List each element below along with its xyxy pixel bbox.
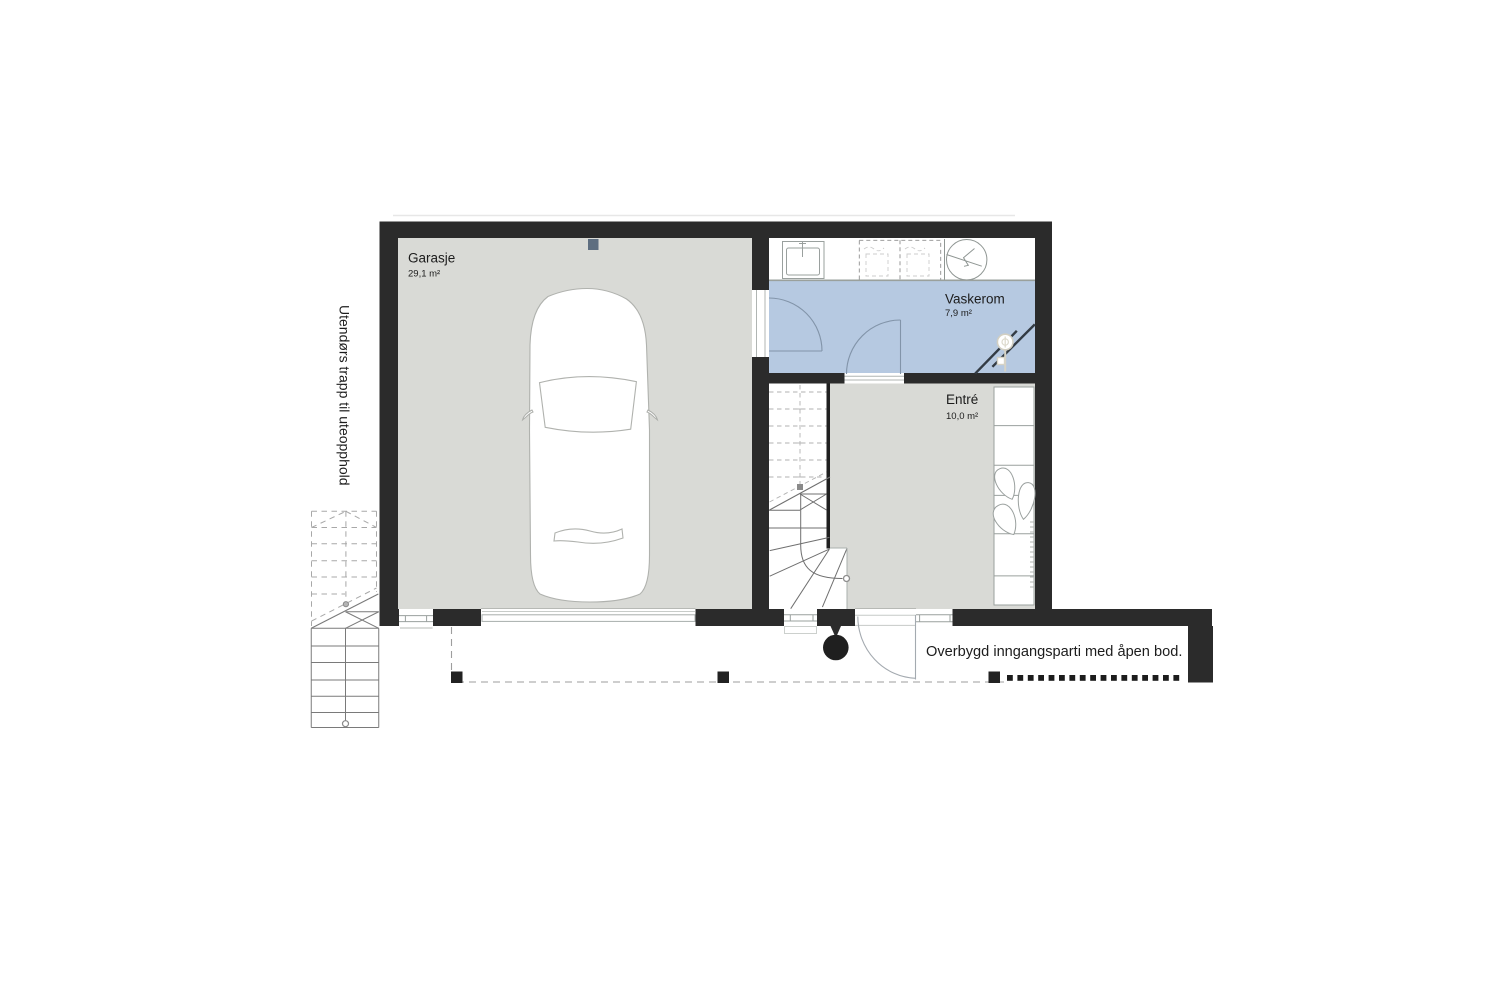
svg-text:Entré: Entré xyxy=(946,392,978,407)
svg-text:7,9 m²: 7,9 m² xyxy=(945,308,972,319)
svg-text:Utendørs trapp til uteopphold: Utendørs trapp til uteopphold xyxy=(337,305,353,486)
svg-text:10,0 m²: 10,0 m² xyxy=(946,411,978,422)
svg-text:29,1 m²: 29,1 m² xyxy=(408,268,440,279)
svg-text:Vaskerom: Vaskerom xyxy=(945,292,1005,307)
svg-text:Overbygd inngangsparti med åpe: Overbygd inngangsparti med åpen bod. xyxy=(926,644,1182,660)
svg-text:Garasje: Garasje xyxy=(408,251,455,266)
